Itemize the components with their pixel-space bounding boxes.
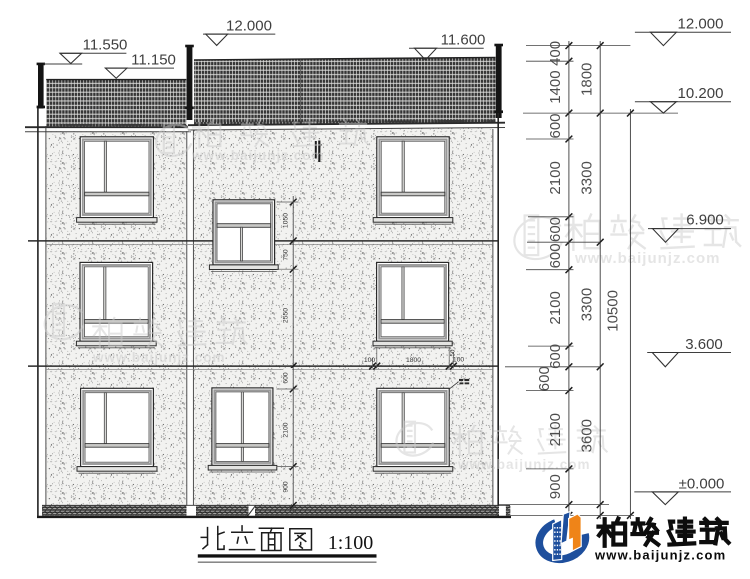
- svg-text:1050: 1050: [283, 213, 290, 228]
- svg-text:600: 600: [547, 243, 564, 268]
- svg-text:3300: 3300: [578, 288, 595, 321]
- svg-text:3600: 3600: [578, 419, 595, 452]
- svg-text:600: 600: [283, 372, 290, 384]
- svg-text:2100: 2100: [547, 291, 564, 324]
- svg-text:600: 600: [547, 113, 564, 138]
- svg-text:10.200: 10.200: [678, 85, 724, 102]
- svg-text:1:100: 1:100: [328, 532, 374, 554]
- svg-text:6.900: 6.900: [686, 212, 724, 229]
- svg-text:3.600: 3.600: [685, 336, 723, 353]
- svg-text:900: 900: [283, 481, 290, 493]
- svg-text:12.000: 12.000: [226, 18, 272, 35]
- svg-text:12.000: 12.000: [678, 16, 724, 33]
- svg-text:±0.000: ±0.000: [679, 475, 725, 492]
- svg-text:600: 600: [536, 366, 553, 391]
- svg-text:www.baijunjz.com: www.baijunjz.com: [574, 250, 720, 267]
- svg-text:1800: 1800: [406, 357, 421, 364]
- svg-text:900: 900: [547, 474, 564, 499]
- svg-text:750: 750: [283, 249, 290, 261]
- svg-text:100: 100: [453, 356, 465, 363]
- svg-text:www.baijunjz.com: www.baijunjz.com: [594, 548, 726, 563]
- svg-text:www.baijunjz.com: www.baijunjz.com: [457, 457, 591, 472]
- svg-text:11.550: 11.550: [83, 37, 128, 54]
- svg-text:100: 100: [364, 357, 376, 364]
- svg-text:2100: 2100: [547, 161, 564, 194]
- svg-text:1400: 1400: [547, 70, 564, 103]
- svg-text:www.baijunjz.com: www.baijunjz.com: [92, 350, 226, 365]
- svg-text:2100: 2100: [547, 413, 564, 446]
- svg-text:50: 50: [450, 349, 457, 356]
- svg-text:2100: 2100: [283, 422, 290, 437]
- svg-text:600: 600: [547, 217, 564, 242]
- svg-text:1800: 1800: [578, 63, 595, 96]
- svg-text:www.baijunjz.com: www.baijunjz.com: [191, 148, 325, 163]
- svg-text:3300: 3300: [578, 161, 595, 194]
- svg-text:10500: 10500: [605, 290, 622, 332]
- svg-text:2550: 2550: [283, 308, 290, 323]
- svg-text:11.150: 11.150: [131, 51, 176, 68]
- svg-text:400: 400: [547, 41, 564, 66]
- svg-text:11.600: 11.600: [441, 32, 486, 49]
- svg-text:600: 600: [547, 344, 564, 369]
